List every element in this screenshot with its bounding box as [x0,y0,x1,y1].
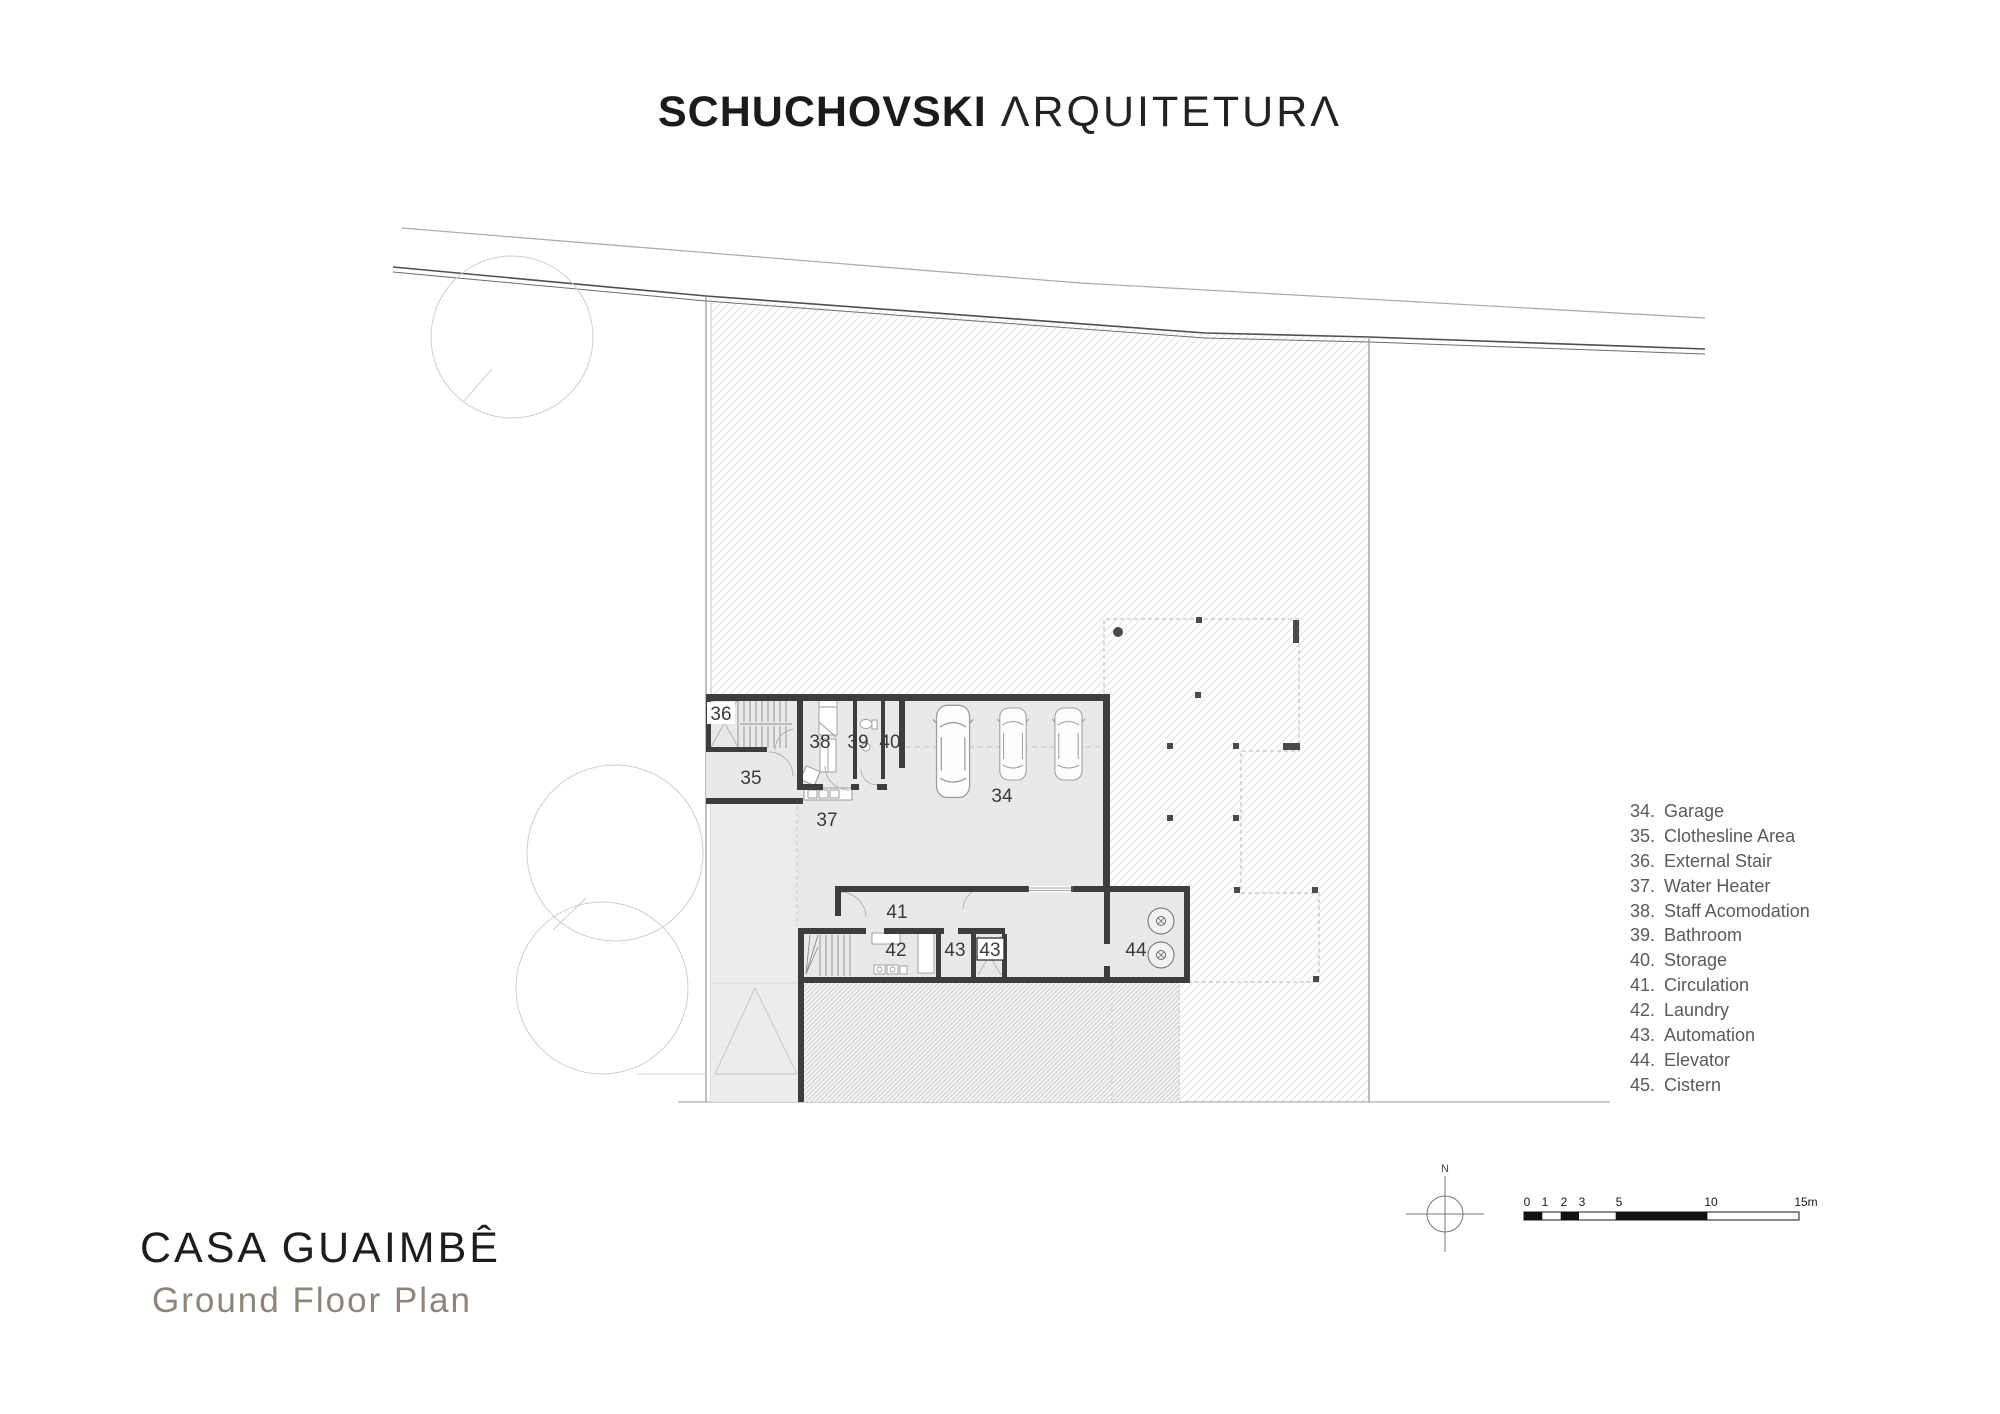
drawing-sheet: SCHUCHOVSKIΛRQUITETURΛ [0,0,2000,1414]
room-label-laundry: 42 [885,940,906,961]
scale-seg-0-1 [1524,1212,1542,1220]
north-arrow: N [1406,1163,1484,1252]
scale-label-10: 10 [1704,1195,1718,1209]
bed [819,697,837,735]
sheet-subtitle: Ground Floor Plan [152,1281,501,1321]
room-legend: 34.Garage 35.Clothesline Area 36.Externa… [1630,799,1810,1098]
legend-item-cistern: 45.Cistern [1630,1073,1810,1098]
scale-label-1: 1 [1542,1195,1549,1209]
legend-item-storage: 40.Storage [1630,948,1810,973]
strip-left-wall [798,983,804,1102]
scale-seg-2-3 [1561,1212,1579,1220]
street-edge-line [402,228,1705,318]
room-label-bathroom: 39 [847,732,868,753]
car-3 [1052,708,1085,780]
legend-item-water-heater: 37.Water Heater [1630,874,1810,899]
tree-canopy-1 [431,256,593,418]
room-label-clothesline: 35 [740,768,761,789]
legend-item-laundry: 42.Laundry [1630,998,1810,1023]
project-title: CASA GUAIMBÊ [140,1224,501,1273]
title-block: CASA GUAIMBÊ Ground Floor Plan [140,1224,501,1321]
scale-label-2: 2 [1561,1195,1568,1209]
legend-item-external-stair: 36.External Stair [1630,849,1810,874]
room-label-automation-a: 43 [944,940,965,961]
legend-item-staff: 38.Staff Acomodation [1630,899,1810,924]
legend-item-automation: 43.Automation [1630,1023,1810,1048]
legend-item-circulation: 41.Circulation [1630,973,1810,998]
scale-bar: 0 1 2 3 5 10 15m [1524,1195,1818,1220]
scale-label-3: 3 [1579,1195,1586,1209]
room-label-external-stair: 36 [710,704,731,725]
trees [431,256,703,1074]
scale-label-5: 5 [1616,1195,1623,1209]
window-41 [1026,886,1074,892]
room-label-automation-b: 43 [979,940,1000,961]
floor-plan-canvas: 34 35 36 37 38 39 40 41 42 43 43 44 N 0 [0,0,2000,1414]
room-label-circulation: 41 [886,902,907,923]
room-label-elevator: 44 [1125,940,1147,961]
car-2 [997,708,1029,780]
room-label-storage: 40 [879,732,900,753]
scale-label-0: 0 [1524,1195,1531,1209]
room-label-water-heater: 37 [816,810,837,831]
scale-label-15m: 15m [1794,1195,1817,1209]
north-label: N [1441,1163,1449,1175]
car-1 [933,705,973,797]
lower-level-projection [798,983,1180,1102]
legend-item-bathroom: 39.Bathroom [1630,923,1810,948]
room-label-staff: 38 [809,732,830,753]
room-label-garage: 34 [991,786,1013,807]
toilet [860,720,872,729]
driveway [711,802,798,1102]
strip-hatch [804,983,1180,1102]
legend-item-elevator: 44.Elevator [1630,1048,1810,1073]
driveway-surface [711,802,798,1102]
tree-canopy-2 [527,765,703,941]
tree-branch-1 [464,369,492,401]
laundry-cabinet [918,933,934,973]
legend-item-garage: 34.Garage [1630,799,1810,824]
scale-seg-5-10 [1616,1212,1708,1220]
legend-item-clothesline: 35.Clothesline Area [1630,824,1810,849]
